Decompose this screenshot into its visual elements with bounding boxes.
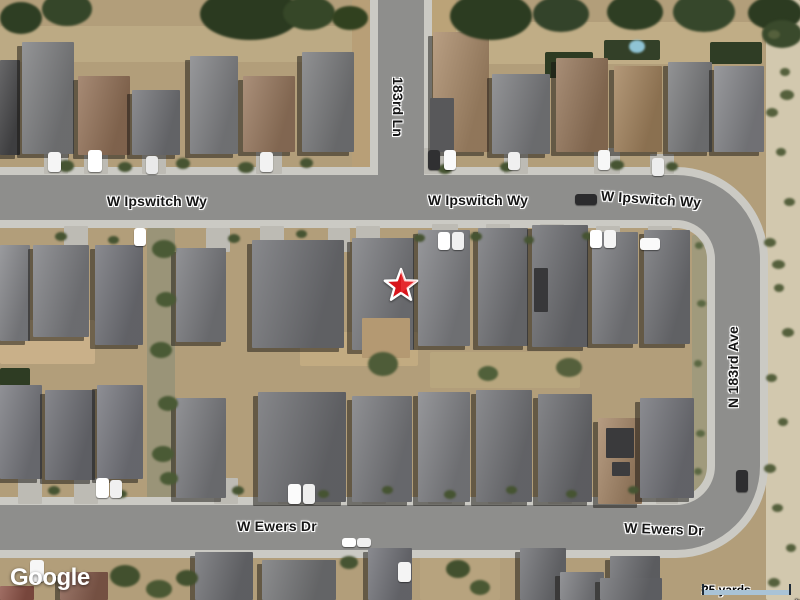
map-viewport[interactable]: W Ipswitch WyW Ipswitch WyW Ipswitch Wy1…	[0, 0, 800, 600]
street-label: N 183rd Ave	[725, 326, 741, 408]
street-label: 183rd Ln	[390, 77, 406, 137]
street-label: W Ipswitch Wy	[107, 193, 207, 209]
google-logo[interactable]: Google	[10, 564, 90, 592]
scale-line	[702, 584, 791, 595]
street-label: W Ewers Dr	[624, 520, 704, 539]
scale-line-cap-left	[702, 584, 704, 595]
location-marker[interactable]	[379, 264, 423, 308]
street-label: W Ipswitch Wy	[600, 188, 701, 211]
street-label: W Ewers Dr	[237, 518, 317, 534]
street-label: W Ipswitch Wy	[428, 192, 528, 208]
scale-line-bar	[702, 590, 791, 595]
scale-line-cap-right	[789, 584, 791, 595]
